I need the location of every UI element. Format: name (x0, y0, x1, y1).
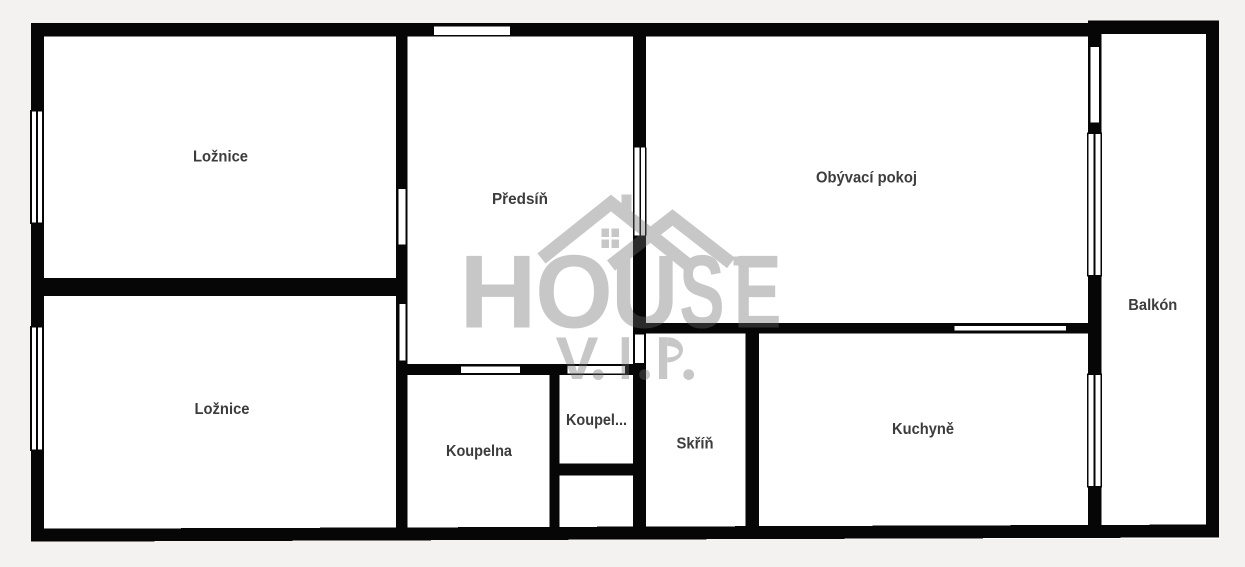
svg-text:S: S (679, 233, 724, 350)
svg-text:Balkón: Balkón (1128, 297, 1177, 314)
svg-text:Koupelna: Koupelna (446, 443, 512, 460)
svg-text:Kuchyně: Kuchyně (892, 421, 954, 438)
svg-text:U: U (611, 234, 678, 350)
svg-text:Skříň: Skříň (677, 436, 714, 453)
svg-text:Ložnice: Ložnice (195, 401, 250, 418)
svg-text:Koupel...: Koupel... (566, 412, 627, 429)
svg-text:Ložnice: Ložnice (193, 148, 248, 165)
svg-text:Předsíň: Předsíň (492, 191, 548, 208)
svg-text:E: E (734, 233, 782, 349)
svg-text:H: H (459, 234, 537, 350)
svg-text:Obývací pokoj: Obývací pokoj (816, 169, 917, 186)
svg-text:V: V (556, 326, 599, 392)
